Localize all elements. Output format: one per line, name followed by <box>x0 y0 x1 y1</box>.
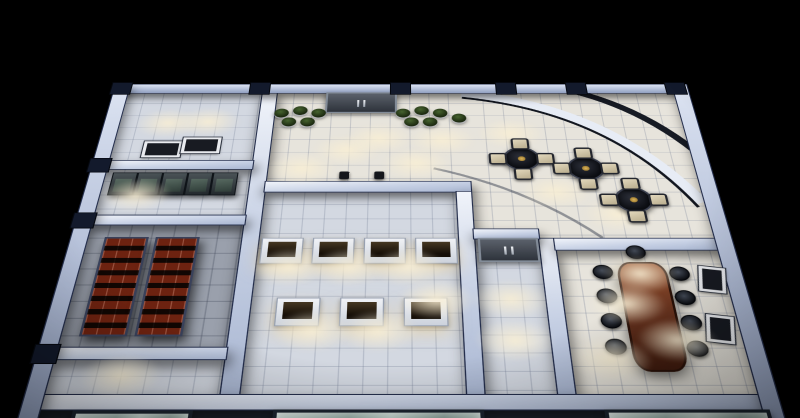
lounge-chair <box>552 162 572 174</box>
wall-column-cap <box>664 82 689 94</box>
wall-column-cap <box>29 344 62 364</box>
glass-window <box>270 409 487 418</box>
lounge-chair <box>648 194 670 207</box>
gallery-cabinet-wall <box>105 160 254 170</box>
lounge-chair <box>599 194 620 207</box>
south-inner-wall <box>38 394 764 411</box>
potted-plant <box>396 109 410 118</box>
floor-plan <box>2 84 798 418</box>
lounge-chair <box>626 210 648 223</box>
wall-column-cap <box>86 158 113 172</box>
wall-column-cap <box>109 82 134 94</box>
workstation-desk <box>311 238 355 264</box>
lounge-chair <box>620 178 641 190</box>
workstation-desk <box>274 298 321 327</box>
lounge-chair <box>573 148 593 159</box>
waste-bin <box>339 171 349 179</box>
wall-column-cap <box>390 82 411 94</box>
glass-window <box>604 409 780 418</box>
storage-cabinet <box>209 172 238 195</box>
vestibule-door <box>478 238 541 262</box>
store-room-floor <box>43 358 225 394</box>
workstation-desk <box>363 238 406 264</box>
render-canvas <box>0 0 800 418</box>
waste-bin <box>374 171 384 179</box>
workstation-desk <box>415 238 458 264</box>
cabinet-archive-wall <box>90 215 247 226</box>
potted-plant <box>433 109 448 118</box>
potted-plant <box>404 117 419 126</box>
wall-column-cap <box>565 82 588 94</box>
glass-window <box>64 411 193 418</box>
picture-frame <box>698 266 726 294</box>
lobby-entrance-door <box>325 92 397 113</box>
potted-plant <box>414 106 429 115</box>
lobby-south-wall <box>263 181 472 192</box>
lounge-chair <box>488 153 507 165</box>
lounge-chair <box>514 168 534 180</box>
picture-frame <box>180 137 221 153</box>
wall-column-cap <box>69 212 98 228</box>
wall-column-cap <box>495 82 517 94</box>
lounge-chair <box>578 178 599 190</box>
archive-store-wall <box>52 347 228 360</box>
workstation-desk <box>259 238 304 264</box>
lounge-chair <box>510 138 529 149</box>
open-office-floor <box>238 191 466 394</box>
picture-frame <box>706 314 735 344</box>
potted-plant <box>423 117 438 126</box>
potted-plant <box>452 114 467 123</box>
workstation-desk <box>404 298 449 327</box>
wall-column-cap <box>248 82 271 94</box>
lounge-chair <box>599 162 620 174</box>
picture-frame <box>141 141 183 157</box>
workstation-desk <box>339 298 384 327</box>
